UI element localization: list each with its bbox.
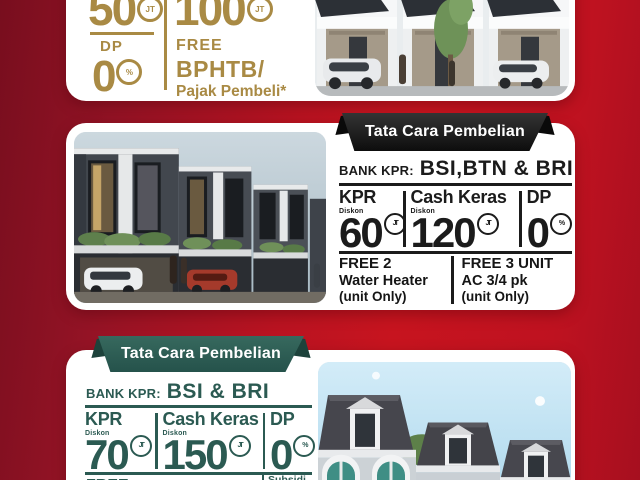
offer-divider bbox=[519, 191, 522, 247]
amount-number: 50 bbox=[88, 0, 135, 32]
subsidi-divider bbox=[262, 474, 264, 480]
unit-percent-circle: % bbox=[550, 213, 572, 235]
subsidi-label: Subsidi bbox=[268, 474, 306, 480]
house-photo-top bbox=[315, 0, 569, 96]
ribbon-banner-bottom: Tata Cara Pembelian bbox=[98, 336, 304, 372]
amount-number: 100 bbox=[174, 0, 245, 32]
offer-number: 120 bbox=[411, 216, 475, 250]
subsidi-block: Subsidi bbox=[262, 474, 306, 480]
unit-jt-circle: JT bbox=[477, 213, 499, 235]
offer-number: 70 bbox=[85, 438, 128, 472]
bank-kpr-line: BANK KPR: BSI,BTN & BRI bbox=[339, 157, 573, 181]
promo-card-top: 50 JT 100 JT DP 0 % FREE BPHTB/ Pajak Pe… bbox=[66, 0, 575, 101]
offer-dp: DP 0 % bbox=[527, 188, 572, 250]
offer-label: Cash Keras bbox=[411, 188, 516, 207]
amount-number: 0 bbox=[92, 55, 114, 99]
offer-number: 60 bbox=[339, 216, 382, 250]
free-title: FREE bbox=[176, 37, 286, 55]
unit-jt-circle: JT bbox=[229, 435, 251, 457]
freebie-line1: FREE 3 UNIT bbox=[462, 256, 554, 273]
offer-amount: 0 % bbox=[270, 438, 315, 472]
free-bphtb-text: BPHTB/ bbox=[176, 58, 286, 81]
offer-dp: DP 0 % bbox=[270, 410, 315, 472]
divider-line bbox=[339, 183, 572, 186]
freebies-row: FREE 2 Water Heater (unit Only) FREE 3 U… bbox=[339, 256, 572, 304]
freebie-line3: (unit Only) bbox=[462, 289, 554, 304]
dp-block: DP 0 % bbox=[92, 38, 142, 99]
dark-townhouse-render bbox=[74, 132, 326, 303]
gold-vertical-divider bbox=[164, 0, 167, 90]
bank-kpr-value: BSI,BTN & BRI bbox=[420, 157, 574, 181]
freebie-line2: AC 3/4 pk bbox=[462, 273, 554, 289]
offers-row: KPR Diskon 60 JT Cash Keras Diskon 120 J… bbox=[339, 188, 572, 250]
cash-discount-amount: 100 JT bbox=[174, 0, 273, 32]
offer-divider bbox=[155, 413, 158, 469]
offer-amount: 120 JT bbox=[411, 216, 516, 250]
promo-flyer: 50 JT 100 JT DP 0 % FREE BPHTB/ Pajak Pe… bbox=[0, 0, 640, 480]
ribbon-banner-middle: Tata Cara Pembelian bbox=[342, 113, 548, 151]
house-photo-bottom bbox=[318, 362, 571, 480]
promo-card-bottom: Tata Cara Pembelian BANK KPR: BSI & BRI … bbox=[66, 350, 575, 480]
offer-divider bbox=[263, 413, 266, 469]
freebie-ac: FREE 3 UNIT AC 3/4 pk (unit Only) bbox=[462, 256, 554, 304]
house-photo-middle bbox=[74, 132, 326, 303]
offer-amount: 60 JT bbox=[339, 216, 399, 250]
freebie-divider bbox=[451, 256, 454, 304]
unit-jt-circle: JT bbox=[137, 0, 163, 22]
modern-townhouse-render bbox=[315, 0, 569, 96]
free-bphtb-block: FREE BPHTB/ Pajak Pembeli* bbox=[176, 37, 286, 101]
offer-number: 0 bbox=[527, 216, 548, 250]
offer-cash-keras: Cash Keras Diskon 150 JT bbox=[163, 410, 259, 472]
offer-label: DP bbox=[270, 410, 315, 429]
free-pajak-text: Pajak Pembeli* bbox=[176, 83, 286, 101]
unit-percent-circle: % bbox=[293, 435, 315, 457]
freebie-line3: (unit Only) bbox=[339, 289, 443, 304]
offer-amount: 0 % bbox=[527, 216, 572, 250]
classic-house-render bbox=[318, 362, 571, 480]
offer-divider bbox=[403, 191, 406, 247]
divider-line bbox=[339, 251, 572, 254]
freebie-line1: FREE 2 bbox=[339, 256, 443, 273]
offer-number: 150 bbox=[163, 438, 227, 472]
offer-kpr: KPR Diskon 70 JT bbox=[85, 410, 151, 472]
offer-amount: 70 JT bbox=[85, 438, 151, 472]
ribbon-title: Tata Cara Pembelian bbox=[98, 336, 304, 372]
ribbon-title: Tata Cara Pembelian bbox=[342, 113, 548, 151]
bank-kpr-label: BANK KPR: bbox=[339, 163, 414, 178]
unit-jt-circle: JT bbox=[247, 0, 273, 22]
freebie-line2: Water Heater bbox=[339, 273, 443, 289]
bank-kpr-line: BANK KPR: BSI & BRI bbox=[86, 380, 269, 404]
offer-number: 0 bbox=[270, 438, 291, 472]
offer-kpr: KPR Diskon 60 JT bbox=[339, 188, 399, 250]
bank-kpr-value: BSI & BRI bbox=[167, 380, 270, 404]
unit-percent-circle: % bbox=[116, 59, 142, 85]
bank-kpr-label: BANK KPR: bbox=[86, 386, 161, 401]
promo-card-middle: Tata Cara Pembelian BANK KPR: BSI,BTN & … bbox=[66, 123, 575, 310]
offer-label: KPR bbox=[339, 188, 399, 207]
offer-label: Cash Keras bbox=[163, 410, 259, 429]
offer-label: KPR bbox=[85, 410, 151, 429]
offer-amount: 150 JT bbox=[163, 438, 259, 472]
divider-line bbox=[85, 405, 312, 408]
unit-jt-circle: JT bbox=[130, 435, 152, 457]
offer-label: DP bbox=[527, 188, 572, 207]
dp-amount: 0 % bbox=[92, 55, 142, 99]
offers-row: KPR Diskon 70 JT Cash Keras Diskon 150 J… bbox=[85, 410, 312, 472]
kpr-discount-amount: 50 JT bbox=[88, 0, 163, 32]
freebie-water-heater: FREE 2 Water Heater (unit Only) bbox=[339, 256, 443, 304]
offer-cash-keras: Cash Keras Diskon 120 JT bbox=[411, 188, 516, 250]
